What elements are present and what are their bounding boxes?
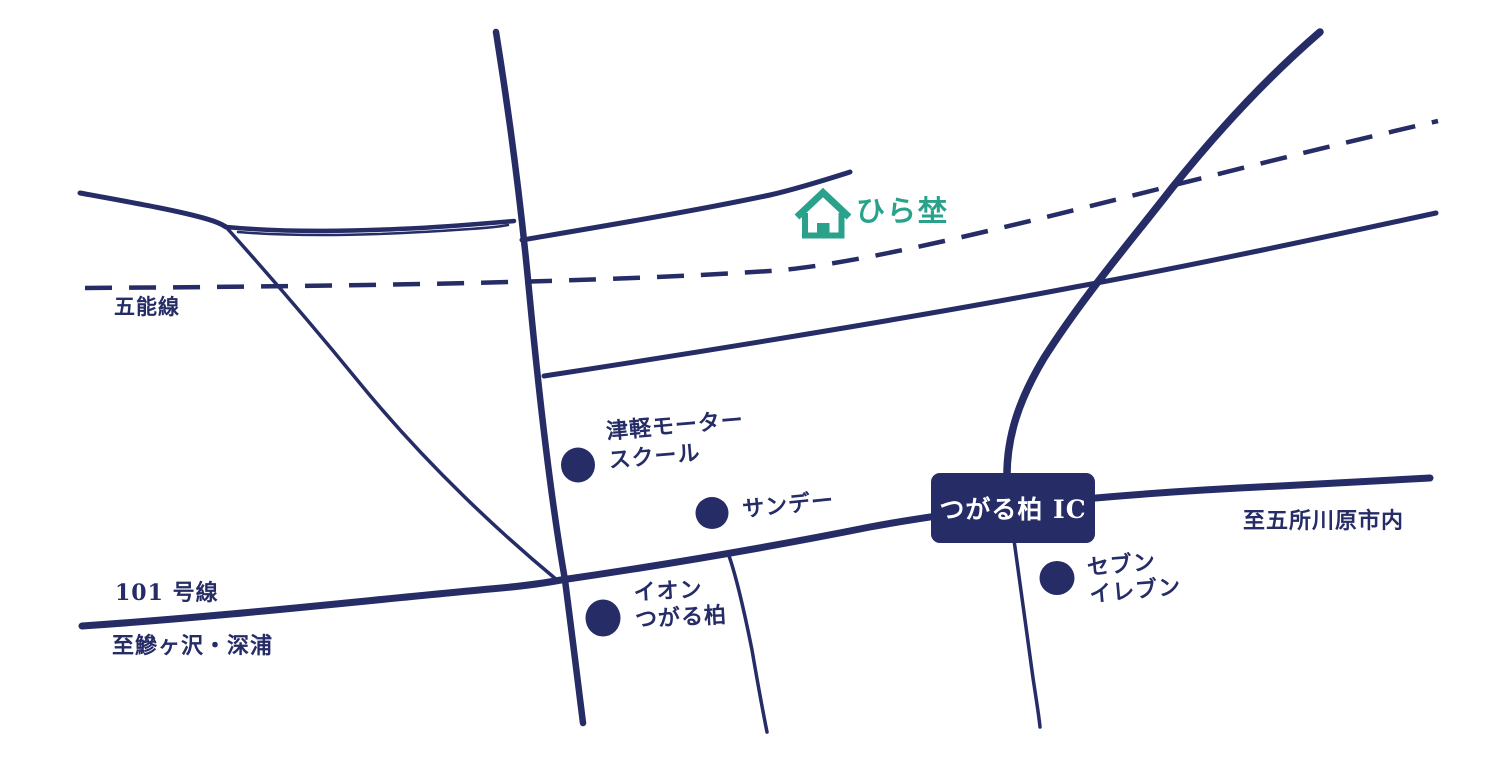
- road-to-hirano: [522, 172, 850, 240]
- road-expressway-south: [1014, 540, 1040, 727]
- poi-label-line: つがる柏: [634, 602, 727, 634]
- poi-label-seven-eleven: セブン イレブン: [1086, 547, 1182, 609]
- hirano-label: ひら埜: [856, 193, 949, 229]
- road-branch-south: [728, 553, 767, 732]
- poi-dot-sunday: [696, 497, 729, 529]
- access-map: つがる柏 IC 五能線 101 号線 至鰺ヶ沢・深浦 至五所川原市内 ひら埜 津…: [0, 0, 1509, 759]
- poi-dot-tsugaru-motor-school: [561, 448, 595, 483]
- poi-label-aeon: イオン つがる柏: [633, 575, 728, 634]
- house-icon-door: [817, 223, 830, 236]
- poi-dot-seven-eleven: [1040, 561, 1075, 595]
- poi-dot-aeon: [586, 600, 621, 637]
- railway-label: 五能線: [114, 294, 180, 320]
- interchange-box: つがる柏 IC: [931, 473, 1095, 543]
- destination-southwest-label: 至鰺ヶ沢・深浦: [112, 633, 273, 661]
- railway-gono-line: [85, 121, 1438, 288]
- route-101-label: 101 号線: [115, 580, 219, 608]
- poi-label-tsugaru-motor-school: 津軽モーター スクール: [605, 406, 748, 476]
- house-icon: [797, 193, 849, 236]
- destination-northeast-label: 至五所川原市内: [1243, 508, 1404, 536]
- road-middle-east: [544, 213, 1436, 376]
- road-expressway-north: [1007, 32, 1320, 480]
- interchange-label: つがる柏 IC: [939, 490, 1086, 526]
- road-topleft-approach: [80, 193, 226, 227]
- road-vertical-main: [496, 32, 583, 723]
